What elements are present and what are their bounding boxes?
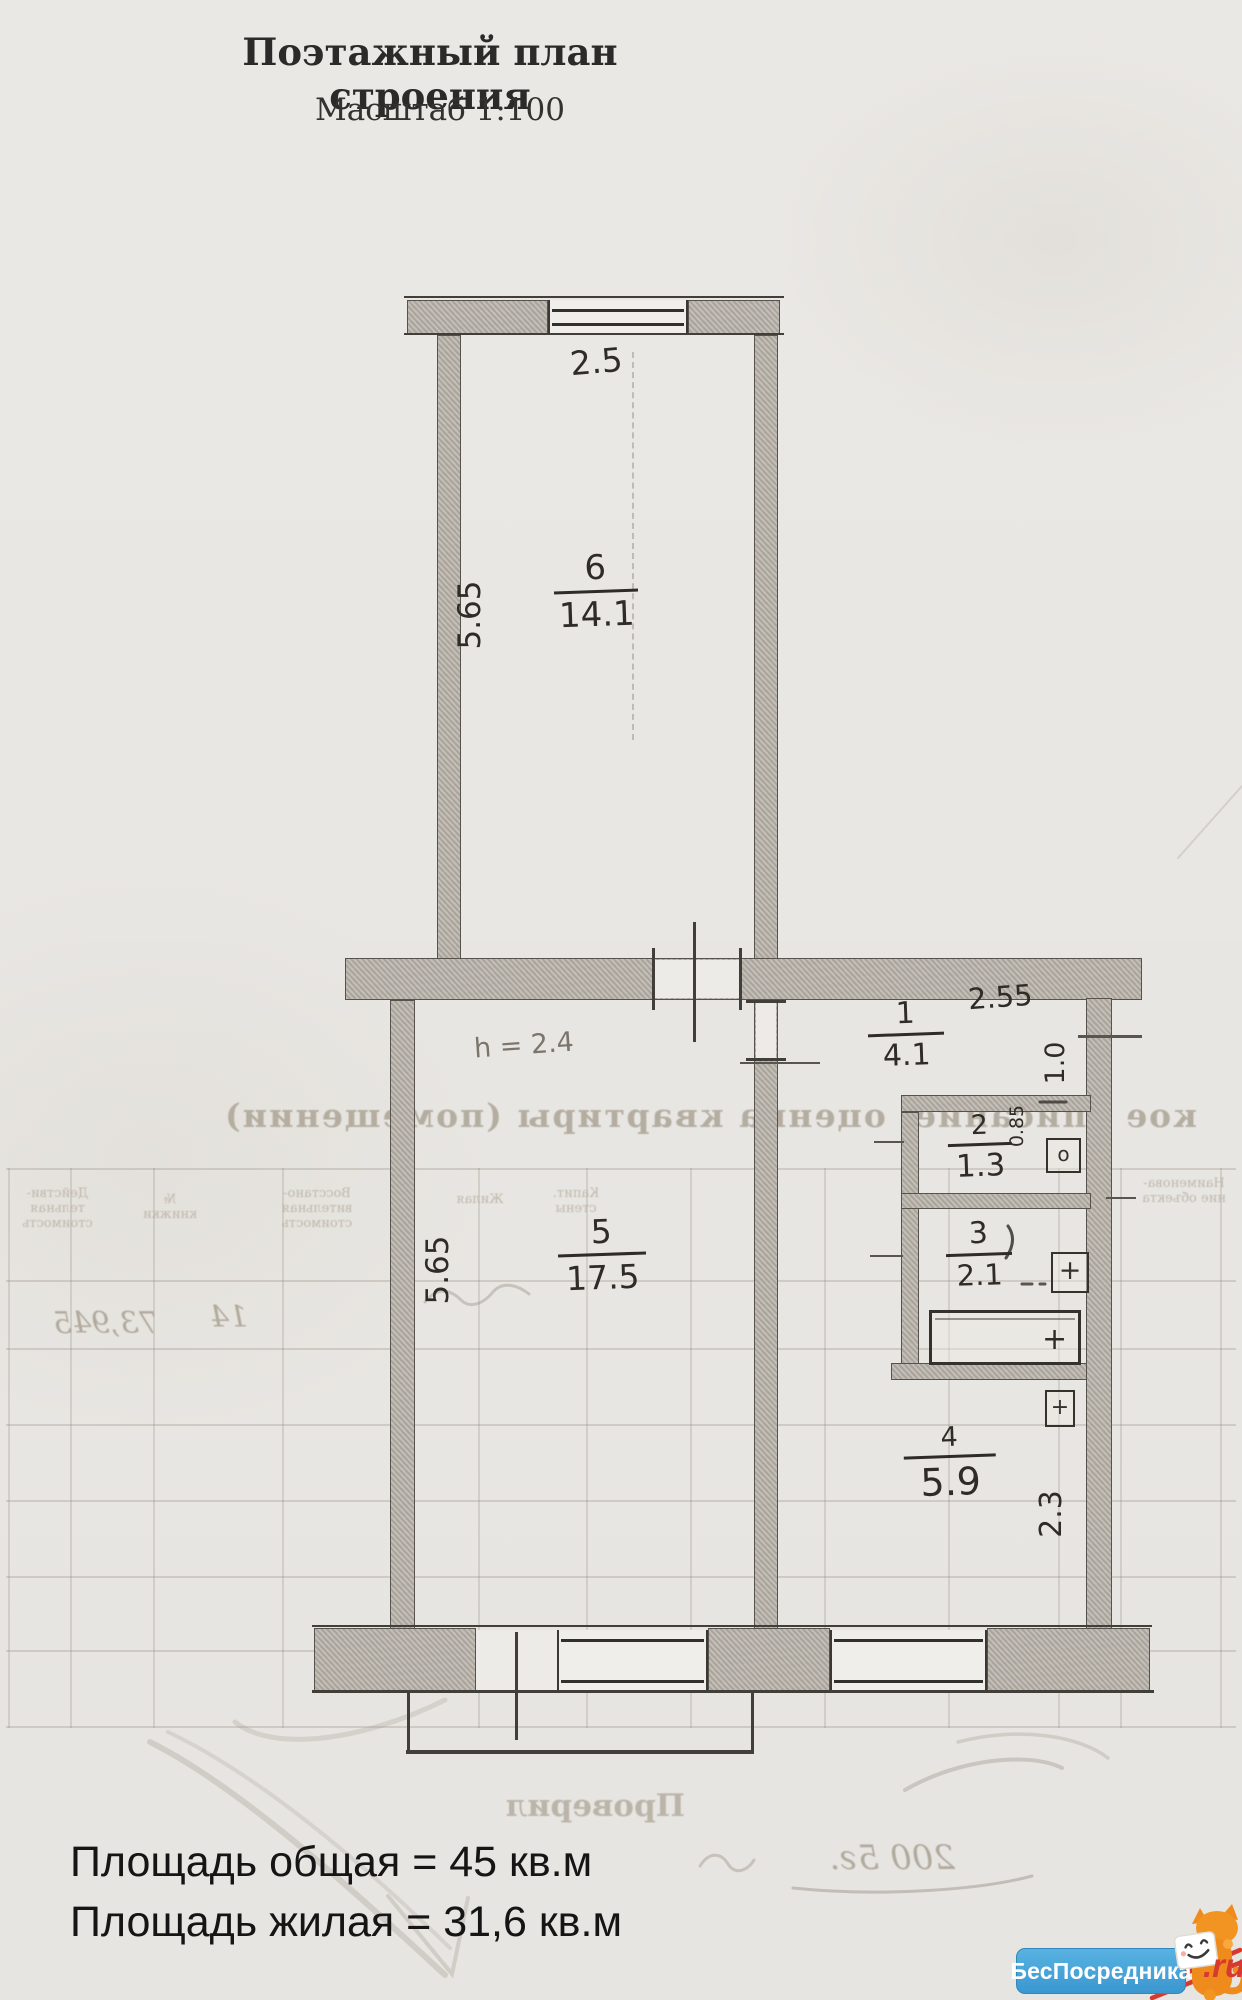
bleed-table-header: № книжки	[140, 1192, 200, 1222]
bleed-grid-line	[6, 1576, 1236, 1578]
sink-symbol: o	[1046, 1138, 1081, 1173]
bleed-table-header: Восстано- вительная стоимость	[262, 1186, 372, 1231]
bleed-grid-line	[1220, 1168, 1222, 1728]
wall-bottom-exterior	[987, 1628, 1150, 1692]
bleed-header-line: Капит.	[540, 1186, 612, 1201]
room-area: 2.1	[940, 1257, 1019, 1294]
bleed-header-line: Наименова-	[1132, 1176, 1236, 1191]
room-area: 14.1	[548, 593, 645, 636]
bleed-header-line: Жилая	[450, 1192, 510, 1207]
door-jamb	[746, 1000, 786, 1003]
door-jamb	[746, 1058, 786, 1061]
room-number: 3	[939, 1215, 1018, 1253]
wall-bottom-exterior	[708, 1628, 830, 1692]
dimension-room6-depth: 5.65	[452, 552, 488, 678]
bleed-grid-line	[153, 1168, 155, 1728]
bleed-row-value: 73,945	[8, 1306, 158, 1341]
window-room6	[548, 300, 688, 335]
door-jamb	[739, 948, 742, 1010]
wall-edge-line	[312, 1625, 1152, 1627]
vent-tick	[1106, 1197, 1136, 1199]
balcony-outline	[751, 1692, 754, 1752]
bleed-grid-line	[282, 1168, 284, 1728]
room-label-5: 5 17.5	[551, 1210, 654, 1298]
bleed-verified-label: Проверил	[470, 1788, 685, 1824]
bleed-row-value: 14	[196, 1300, 248, 1335]
dimension-room6-width: 2.5	[568, 340, 624, 383]
living-area-text: Площадь жилая = 31,6 кв.м	[70, 1898, 622, 1947]
balcony-outline	[406, 1750, 754, 1754]
room-number: 5	[551, 1210, 652, 1252]
dimension-kitchen-depth: 2.3	[1034, 1468, 1069, 1560]
scanned-floor-plan-page: кое описание, оценка квартиры (помещении…	[0, 0, 1242, 2000]
doorway-hall	[756, 1002, 776, 1058]
vent-tick	[1078, 1035, 1142, 1038]
door-jamb	[652, 948, 655, 1010]
bleed-header-line: стоимость	[10, 1216, 105, 1231]
bleed-grid-line	[6, 1726, 1236, 1728]
room-label-4: 4 5.9	[897, 1420, 1004, 1506]
bleed-header-line: тельная	[10, 1201, 105, 1216]
room-area: 4.1	[862, 1036, 951, 1074]
vent-symbol: +	[1045, 1390, 1075, 1427]
wall-divider-room5	[754, 1000, 778, 1630]
bathtub-inner-line	[935, 1318, 1075, 1320]
watermark-brand-text: БесПосредника	[1010, 1958, 1191, 1985]
wall-wc-divider	[901, 1193, 1091, 1209]
watermark-suffix-text: .ru	[1203, 1947, 1242, 1985]
wall-right-exterior	[1086, 998, 1112, 1630]
dimension-wc-width: 0.85	[1006, 1102, 1028, 1150]
door-swing-tick	[740, 1062, 820, 1064]
bleed-table-header: Действи- тельная стоимость	[10, 1186, 105, 1231]
door-tick-bath	[870, 1255, 903, 1257]
room-area: 5.9	[898, 1458, 1003, 1506]
bleed-header-line: стоимость	[262, 1216, 372, 1231]
bleed-grid-line	[70, 1168, 72, 1728]
wall-wc-left	[901, 1112, 919, 1378]
bath-cross-mark: +	[1042, 1322, 1067, 1357]
wall-edge-line	[404, 296, 784, 298]
bleed-header-line: ние объекта	[1132, 1191, 1236, 1206]
dimension-hall-width: 2.55	[967, 978, 1034, 1016]
bleed-header-line: Действи-	[10, 1186, 105, 1201]
bleed-header-line: Восстано-	[262, 1186, 372, 1201]
wall-right-room6	[754, 335, 778, 960]
room-number: 4	[897, 1420, 1002, 1455]
room-number: 1	[861, 994, 950, 1032]
room-label-1: 1 4.1	[861, 994, 952, 1074]
bleed-table-header: Жилая	[450, 1192, 510, 1207]
dimension-hall-depth: 1.0	[1040, 1026, 1071, 1100]
wall-edge-line	[312, 1690, 1154, 1693]
scale-note: Масштаб 1:100	[150, 92, 730, 128]
wall-edge-line	[404, 333, 784, 335]
door-leaf	[693, 922, 696, 1042]
room-label-6: 6 14.1	[547, 546, 646, 636]
wall-wc-bottom	[891, 1363, 1087, 1380]
bleed-header-line: книжки	[140, 1207, 200, 1222]
bleed-table-header: Наименова- ние объекта	[1132, 1176, 1236, 1206]
room-label-3: 3 2.1	[939, 1215, 1020, 1294]
bleed-header-line: №	[140, 1192, 200, 1207]
door-tick-wc	[874, 1141, 904, 1143]
dimension-room5-depth: 5.65	[420, 1208, 456, 1332]
toilet-symbol: +	[1051, 1252, 1089, 1293]
wall-top-exterior	[407, 300, 548, 335]
room-area: 17.5	[552, 1256, 653, 1298]
window-room5	[557, 1630, 708, 1692]
wall-left-room5	[390, 1000, 415, 1630]
room-area: 1.3	[942, 1147, 1019, 1186]
doorway-room6	[654, 960, 740, 998]
watermark-badge[interactable]: БесПосредника	[1016, 1948, 1186, 1994]
bleed-handwritten-note: 200 5г.	[795, 1838, 955, 1878]
ceiling-height-note: h = 2.4	[473, 1027, 575, 1065]
wall-bottom-exterior	[314, 1628, 476, 1692]
wall-top-exterior	[688, 300, 780, 335]
balcony-outline	[407, 1692, 410, 1752]
bleed-grid-line	[8, 1168, 10, 1728]
room-number: 6	[547, 546, 644, 589]
total-area-text: Площадь общая = 45 кв.м	[70, 1838, 592, 1887]
window-kitchen	[830, 1630, 987, 1692]
balcony-door-leaf	[515, 1632, 518, 1740]
bleed-header-line: вительная	[262, 1201, 372, 1216]
